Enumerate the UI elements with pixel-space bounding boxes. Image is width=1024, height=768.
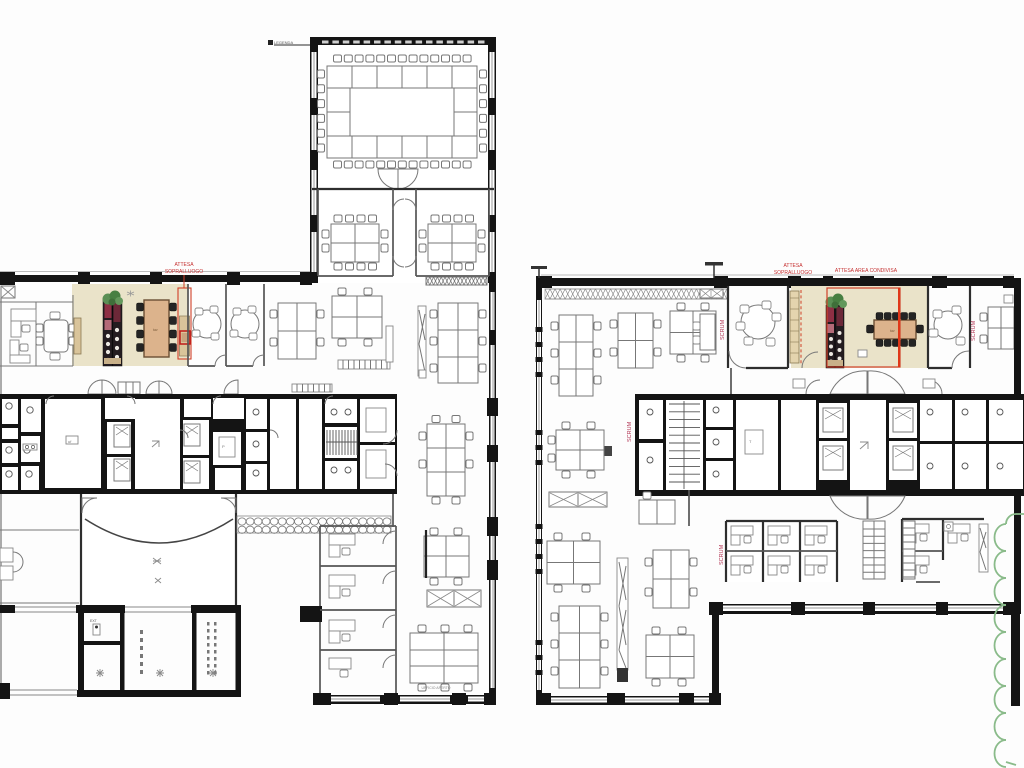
svg-text:SCRUM: SCRUM — [627, 421, 633, 442]
svg-text:ATTESA AREA CONDIVISA: ATTESA AREA CONDIVISA — [835, 268, 898, 274]
svg-text:SCRUM: SCRUM — [971, 320, 977, 341]
svg-text:LEGENDA: LEGENDA — [274, 40, 293, 45]
svg-text:SCRUM: SCRUM — [720, 319, 726, 340]
svg-text:P: P — [222, 444, 225, 449]
svg-text:ATTESA: ATTESA — [783, 263, 803, 269]
svg-text:SCRUM: SCRUM — [719, 544, 725, 565]
svg-text:UFFICIO APERTO: UFFICIO APERTO — [421, 686, 450, 690]
svg-text:tav: tav — [890, 329, 895, 333]
svg-text:SOPRALLUOGO: SOPRALLUOGO — [774, 270, 812, 276]
svg-text:tav: tav — [153, 328, 158, 332]
svg-text:EXT: EXT — [90, 619, 98, 623]
svg-text:ATTESA: ATTESA — [174, 262, 194, 268]
svg-text:SOPRALLUOGO: SOPRALLUOGO — [165, 269, 203, 275]
